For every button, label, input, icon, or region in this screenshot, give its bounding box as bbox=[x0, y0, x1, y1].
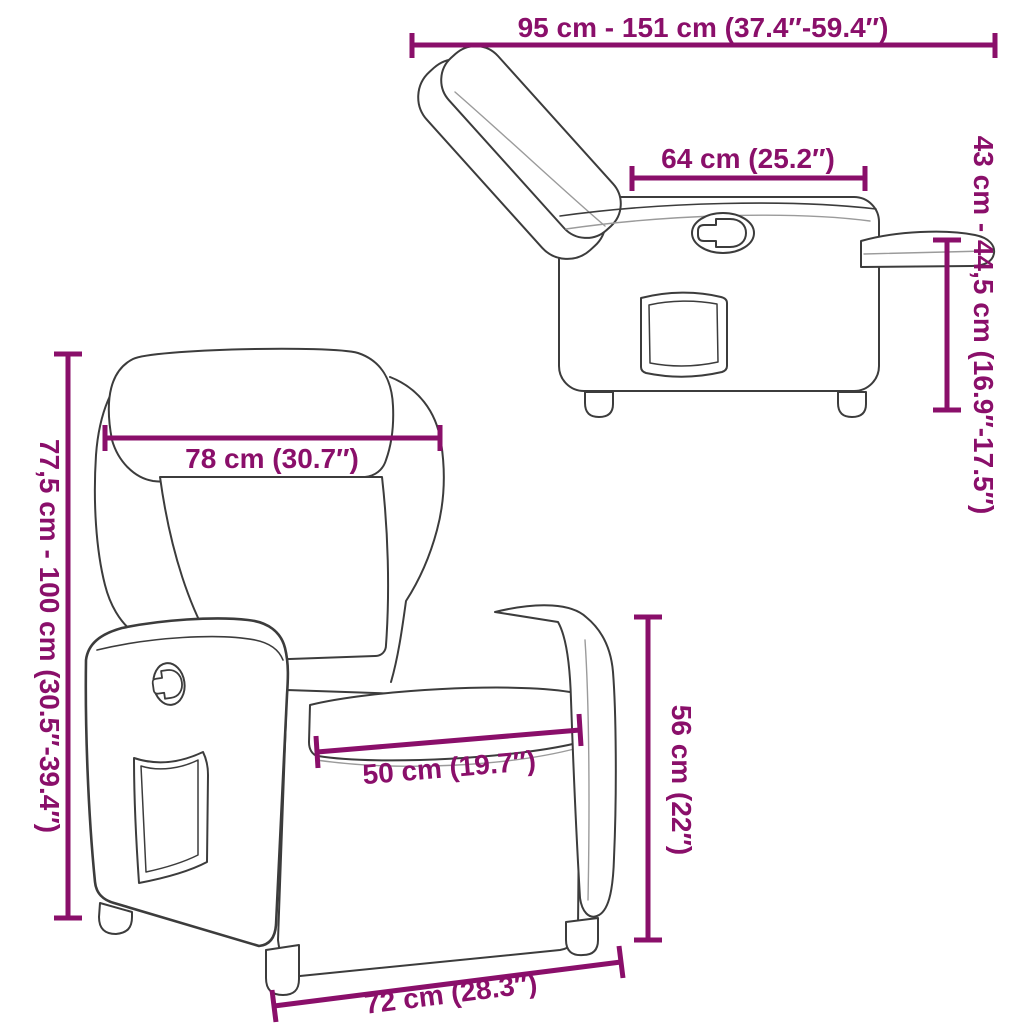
side-pocket bbox=[641, 293, 727, 377]
dim-backrest-width-label: 78 cm (30.7″) bbox=[185, 443, 359, 474]
dim-total-height: 77,5 cm - 100 cm (30.5″-39.4″) bbox=[34, 354, 82, 918]
front-right-wing bbox=[390, 377, 444, 682]
side-release-handle bbox=[692, 213, 754, 253]
side-foot-left bbox=[585, 392, 613, 417]
dim-top-depth: 64 cm (25.2″) bbox=[632, 143, 865, 191]
dim-seat-height-label: 56 cm (22″) bbox=[666, 705, 697, 855]
dim-seat-height: 56 cm (22″) bbox=[634, 617, 697, 940]
front-pocket bbox=[134, 752, 208, 883]
side-foot-right bbox=[838, 392, 866, 417]
dim-total-length: 95 cm - 151 cm (37.4″-59.4″) bbox=[412, 12, 995, 58]
diagram-canvas: 95 cm - 151 cm (37.4″-59.4″) 64 cm (25.2… bbox=[0, 0, 1024, 1024]
dim-footrest-height: 43 cm - 44,5 cm (16.9″-17.5″) bbox=[933, 136, 999, 515]
dim-top-depth-label: 64 cm (25.2″) bbox=[661, 143, 835, 174]
side-view-chair bbox=[404, 34, 994, 417]
front-foot-front-right bbox=[566, 918, 598, 955]
product-dimension-diagram: 95 cm - 151 cm (37.4″-59.4″) 64 cm (25.2… bbox=[0, 0, 1024, 1024]
front-foot-front-left bbox=[266, 945, 299, 995]
dim-total-height-label: 77,5 cm - 100 cm (30.5″-39.4″) bbox=[34, 439, 65, 833]
dim-footrest-height-label: 43 cm - 44,5 cm (16.9″-17.5″) bbox=[968, 136, 999, 515]
dim-base-width-label: 72 cm (28.3″) bbox=[363, 967, 539, 1020]
dim-total-length-label: 95 cm - 151 cm (37.4″-59.4″) bbox=[518, 12, 889, 43]
